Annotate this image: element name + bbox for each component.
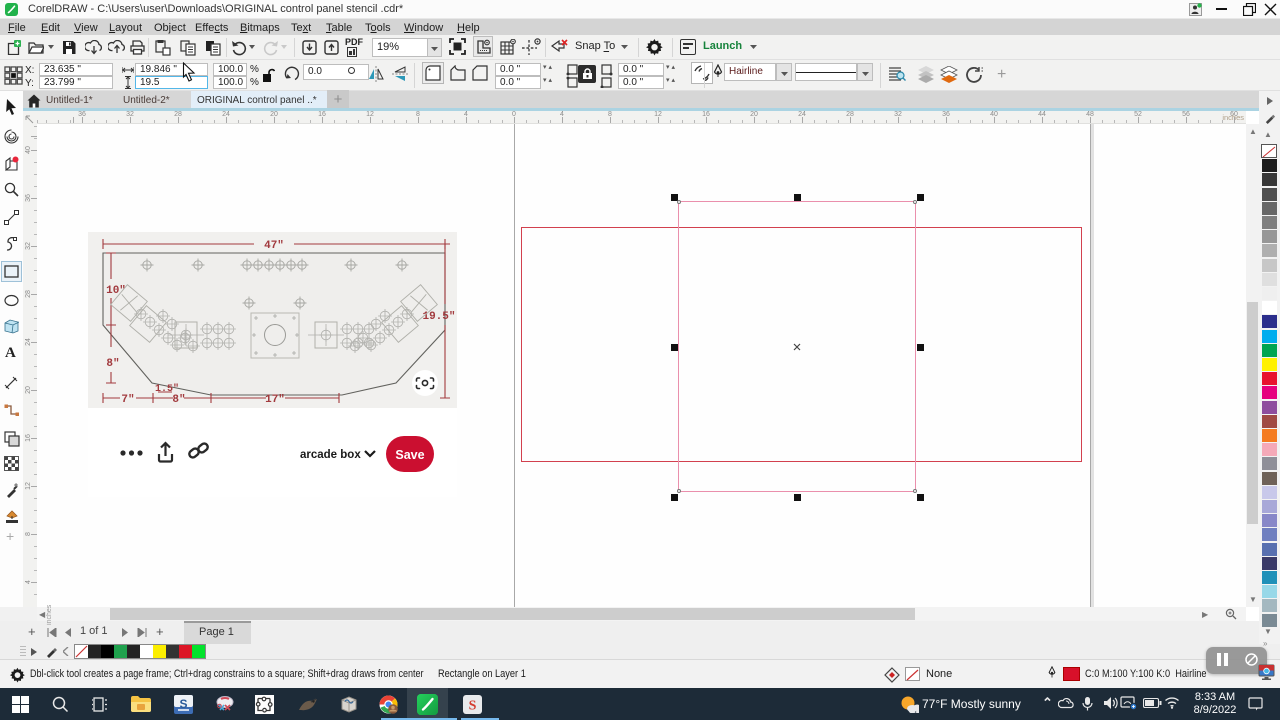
svg-text:arcade box: arcade box xyxy=(300,449,361,461)
svg-text:47": 47" xyxy=(264,240,284,252)
svg-text:8": 8" xyxy=(172,394,185,406)
svg-text:17": 17" xyxy=(265,394,285,406)
svg-text:Save: Save xyxy=(395,448,424,462)
svg-text:8": 8" xyxy=(106,358,119,370)
svg-text:S: S xyxy=(469,699,477,714)
svg-text:1.5": 1.5" xyxy=(155,383,179,395)
svg-text:S: S xyxy=(179,697,187,711)
svg-text:7": 7" xyxy=(121,394,134,406)
